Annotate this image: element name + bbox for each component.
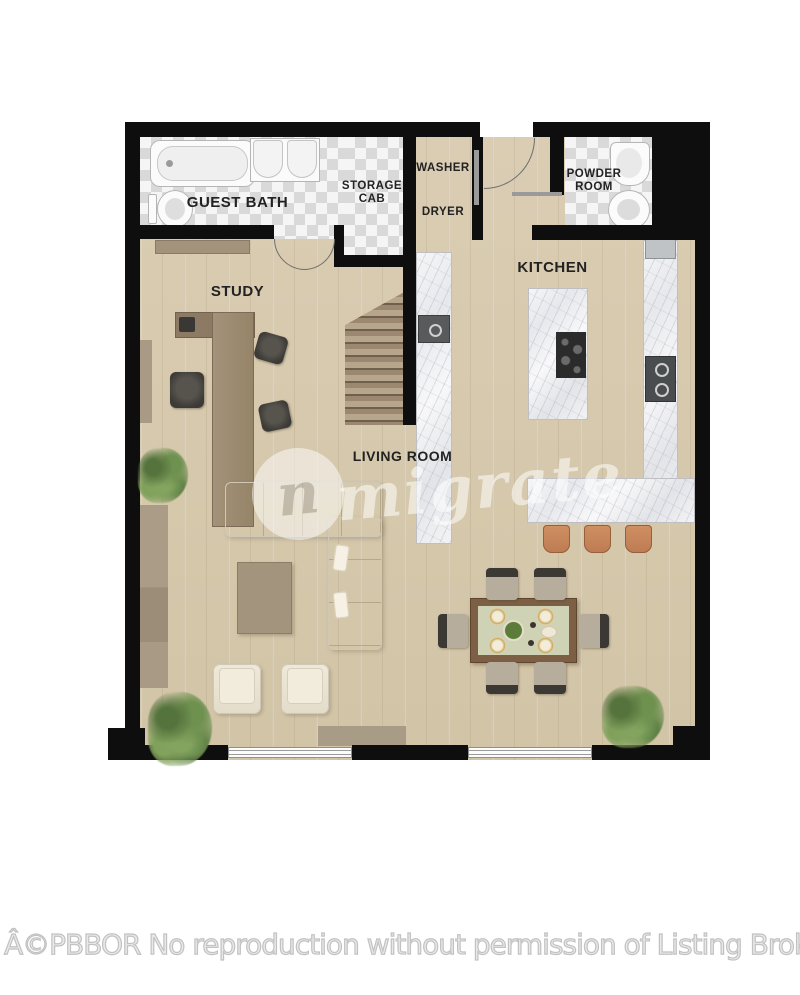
armchair-2 — [281, 664, 329, 714]
stair-counter-sink — [418, 315, 450, 343]
study-credenza — [140, 340, 152, 423]
window-left — [228, 747, 352, 758]
bath-bottom-wall — [140, 225, 274, 239]
powder-toilet — [608, 190, 650, 230]
bath-sink-2 — [287, 140, 317, 178]
bathtub — [150, 140, 255, 187]
bath-sink-1 — [253, 140, 283, 178]
powder-label-line1: POWDER — [563, 168, 625, 181]
bar-stool-3 — [625, 525, 652, 553]
study-label-text: STUDY — [211, 283, 264, 300]
plate-2 — [537, 608, 554, 625]
corner-block-bottom-right — [673, 726, 710, 760]
washer-label-text: WASHER — [416, 162, 469, 174]
powder-left-wall — [550, 137, 564, 195]
storage-left-wall — [334, 225, 344, 267]
left-console — [140, 505, 168, 688]
bath-sink-counter — [250, 138, 320, 182]
guest-bath-label-text: GUEST BATH — [187, 194, 288, 211]
kitchen-label: KITCHEN — [505, 259, 600, 276]
sink-drain-icon — [429, 324, 442, 337]
kitchen-label-text: KITCHEN — [517, 259, 587, 276]
sectional-sofa-right — [328, 517, 382, 650]
plate-4 — [537, 637, 554, 654]
study-label: STUDY — [190, 283, 285, 300]
powder-door-leaf — [512, 192, 562, 196]
dining-chair-top-2 — [534, 568, 566, 600]
corner-block-bottom-left — [108, 728, 145, 760]
study-shelf — [155, 240, 250, 254]
powder-right-wall-block — [652, 122, 695, 240]
bar-stool-1 — [543, 525, 570, 553]
armchair-1 — [213, 664, 261, 714]
table-decor-dot-1 — [530, 622, 536, 628]
dining-chair-right — [579, 614, 609, 648]
powder-label-line2: ROOM — [563, 181, 625, 194]
left-wall — [125, 122, 140, 760]
powder-toilet-inner — [617, 199, 640, 220]
island-cooktop — [556, 332, 586, 378]
dryer-label: DRYER — [414, 206, 472, 219]
sofa-pillow-2 — [333, 591, 350, 618]
dining-chair-left — [438, 614, 468, 648]
right-wall — [695, 122, 710, 760]
toilet-tank — [148, 194, 157, 224]
armchair-seat — [287, 668, 323, 704]
appliance-knob-1 — [655, 363, 669, 377]
plate-3 — [489, 637, 506, 654]
dining-chair-bottom-1 — [486, 662, 518, 694]
watermark-logo-letter: n — [273, 458, 322, 530]
copyright-line: Â©PBBOR No reproduction without permissi… — [4, 928, 800, 961]
washer-label: WASHER — [414, 162, 472, 175]
bathtub-drain — [166, 160, 173, 167]
bar-stool-2 — [584, 525, 611, 553]
table-decor-bread — [541, 626, 557, 638]
bottom-wall-mid — [352, 745, 468, 760]
copyright-text: Â©PBBOR No reproduction without permissi… — [4, 928, 796, 961]
storage-cab-label: STORAGE CAB — [338, 180, 406, 206]
closet-sliding-door — [474, 150, 479, 205]
entry-bottom-wall — [532, 225, 660, 240]
window-right — [468, 747, 592, 758]
top-wall-right — [533, 122, 710, 137]
floor-mat — [318, 726, 406, 746]
storage-label-line2: CAB — [338, 193, 406, 206]
dryer-label-text: DRYER — [422, 206, 464, 218]
coffee-table — [237, 562, 292, 634]
storage-label-line1: STORAGE — [338, 180, 406, 193]
laptop — [179, 317, 195, 332]
top-wall-left — [125, 122, 480, 137]
dining-chair-bottom-2 — [534, 662, 566, 694]
dining-chair-top-1 — [486, 568, 518, 600]
right-counter-appliance — [645, 356, 676, 402]
plate-1 — [489, 608, 506, 625]
salad-bowl — [503, 620, 524, 641]
powder-room-label: POWDER ROOM — [563, 168, 625, 194]
guest-bath-label: GUEST BATH — [165, 194, 310, 211]
appliance-knob-2 — [655, 383, 669, 397]
floorplan-canvas: GUEST BATH STORAGE CAB WASHER DRYER POWD… — [0, 0, 800, 995]
office-chair — [170, 372, 204, 408]
table-decor-dot-2 — [528, 640, 534, 646]
armchair-seat — [219, 668, 255, 704]
bath-door-threshold — [274, 225, 334, 239]
